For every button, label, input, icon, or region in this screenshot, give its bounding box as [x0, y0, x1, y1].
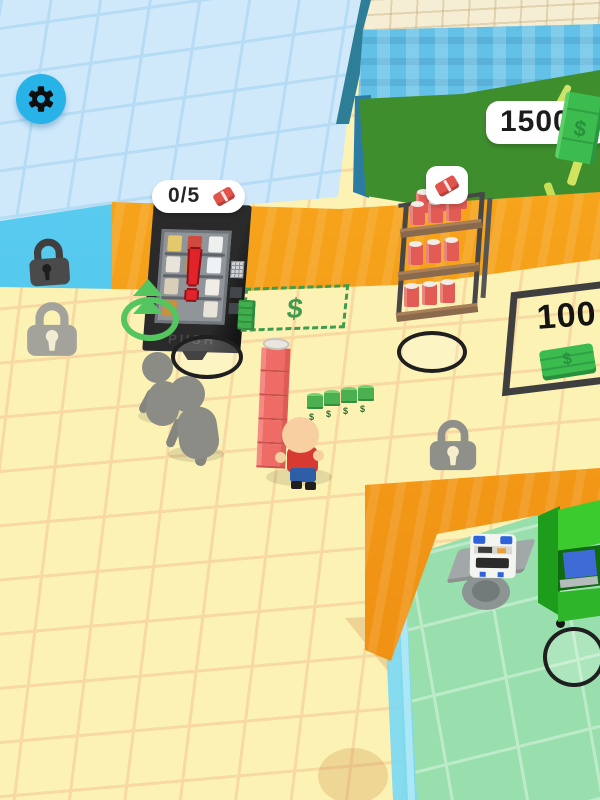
soda-can [440, 282, 455, 303]
money-bill-icon: $ [539, 343, 597, 381]
money-pile [237, 300, 256, 331]
lock-icon[interactable] [6, 300, 98, 358]
stock-count: 0/5 [168, 184, 200, 208]
buy-price: 100 [536, 295, 598, 338]
player-head [282, 417, 319, 453]
upgrade-arrow-icon [133, 297, 163, 314]
rack-badge [426, 166, 468, 204]
floor-shadow [318, 748, 388, 800]
dollar-symbol: $ [244, 291, 345, 326]
green-counter-side [538, 506, 560, 616]
sell-zone[interactable]: $ [241, 284, 350, 332]
blue-box [563, 549, 598, 578]
table-base-inner [472, 580, 500, 602]
soda-can [410, 204, 425, 225]
storage-rack [398, 190, 490, 324]
floor-spot [171, 335, 243, 379]
gear-icon [25, 83, 57, 115]
soda-can [428, 202, 443, 223]
player-shoe [305, 482, 316, 490]
customer-head [169, 376, 205, 412]
cash-register [470, 534, 517, 579]
soda-can [444, 240, 459, 261]
player-shoe [291, 481, 302, 489]
buy-zone[interactable]: 100 $ [502, 278, 600, 397]
soda-can [422, 284, 437, 305]
soda-can-icon [434, 174, 460, 197]
soda-can-tower [256, 337, 291, 474]
player-hand [313, 450, 324, 461]
soda-can [404, 286, 419, 307]
upgrade-arrow-icon [133, 279, 163, 296]
game-stage[interactable]: ! PUSH 0/5 $ [0, 0, 600, 800]
settings-button[interactable] [16, 74, 66, 124]
stock-badge: 0/5 [152, 180, 245, 213]
soda-can [408, 244, 423, 265]
soda-can [426, 242, 441, 263]
green-counter-shelf [558, 545, 600, 591]
customer-head [142, 352, 173, 383]
lock-icon[interactable] [20, 232, 78, 292]
floor-spot [397, 331, 467, 373]
soda-can-icon [212, 186, 236, 207]
lock-icon[interactable] [420, 418, 486, 472]
player-hand [275, 452, 286, 463]
player-pants [290, 468, 316, 482]
floor-spot [543, 627, 600, 687]
